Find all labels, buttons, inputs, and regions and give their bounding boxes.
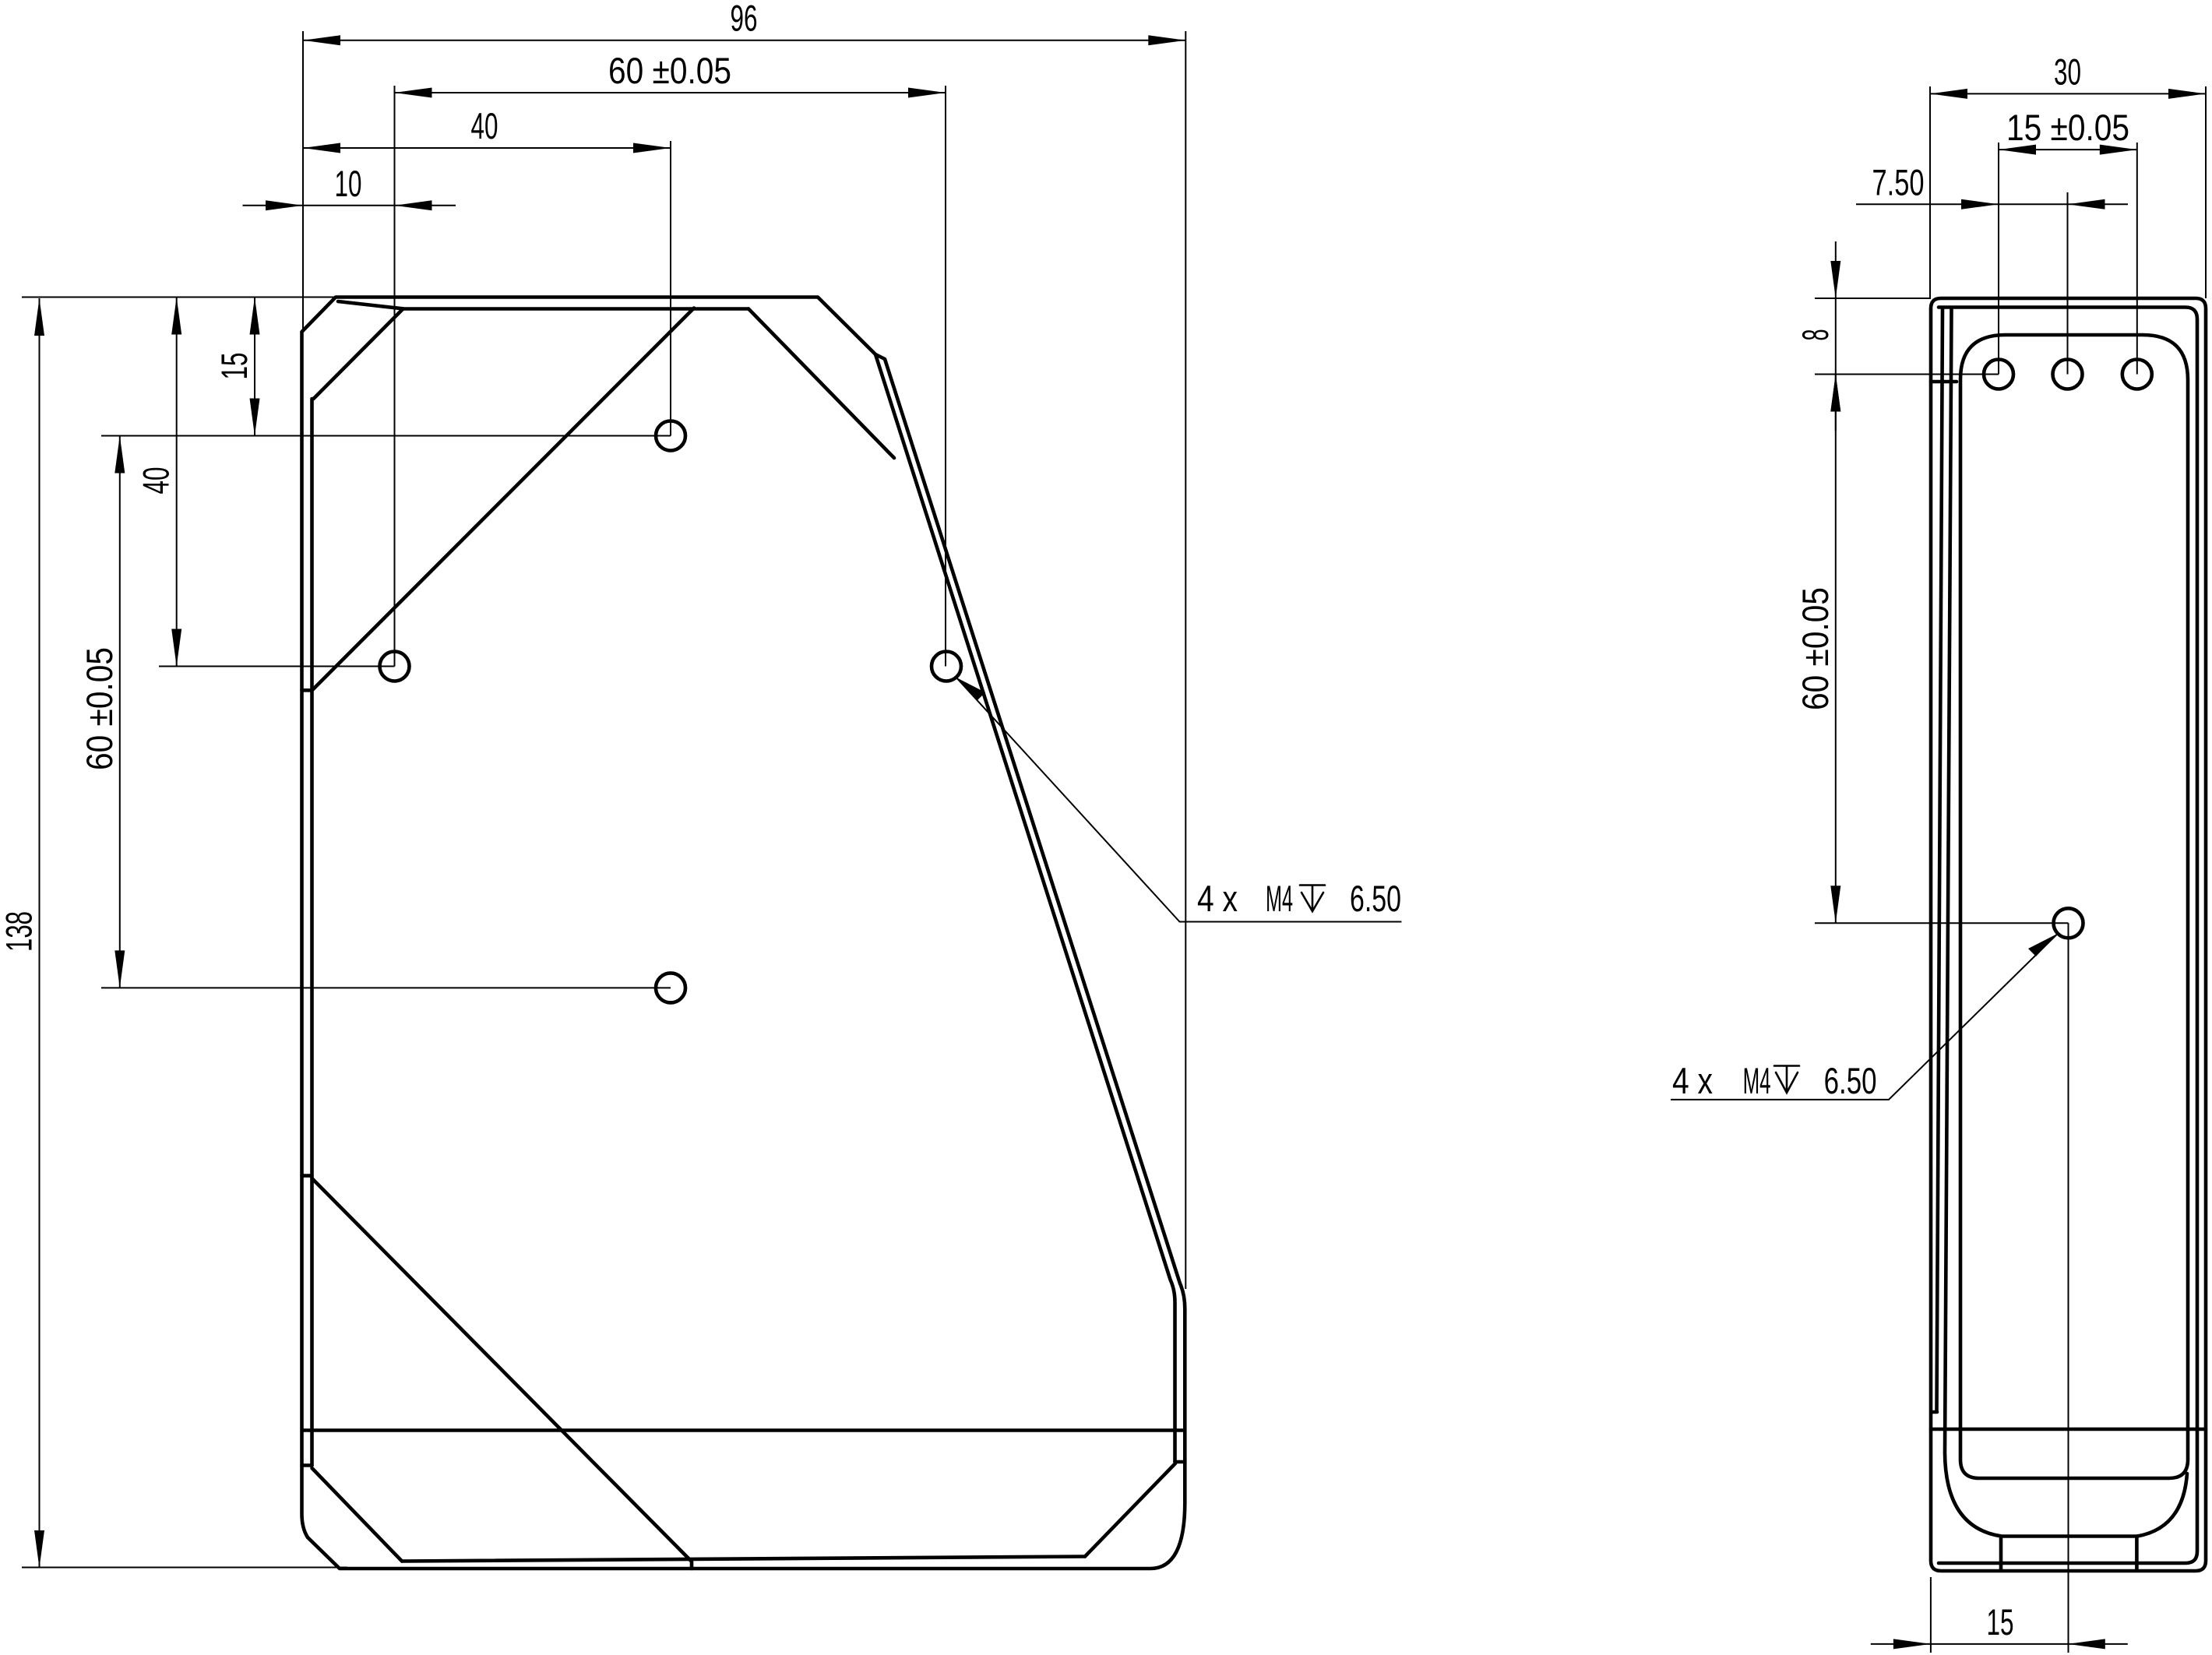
svg-text:96: 96	[731, 0, 758, 39]
svg-text:M4: M4	[1743, 1060, 1771, 1101]
svg-text:15 ±0.05: 15 ±0.05	[2006, 107, 2129, 148]
svg-text:8: 8	[1795, 329, 1836, 341]
svg-text:60 ±0.05: 60 ±0.05	[608, 50, 731, 91]
svg-text:4 x: 4 x	[1197, 878, 1238, 919]
svg-text:15: 15	[1987, 1601, 2014, 1643]
svg-text:30: 30	[2054, 51, 2081, 92]
svg-text:138: 138	[0, 911, 40, 952]
svg-text:60 ±0.05: 60 ±0.05	[1795, 587, 1836, 710]
svg-text:M4: M4	[1266, 878, 1293, 919]
svg-text:40: 40	[471, 105, 498, 146]
svg-text:4 x: 4 x	[1672, 1060, 1713, 1101]
svg-text:15: 15	[213, 353, 255, 380]
svg-text:10: 10	[335, 163, 362, 204]
svg-text:40: 40	[136, 467, 177, 495]
svg-text:60 ±0.05: 60 ±0.05	[79, 647, 120, 770]
svg-text:6.50: 6.50	[1350, 878, 1401, 919]
svg-text:6.50: 6.50	[1824, 1060, 1877, 1101]
svg-text:7.50: 7.50	[1872, 161, 1925, 202]
